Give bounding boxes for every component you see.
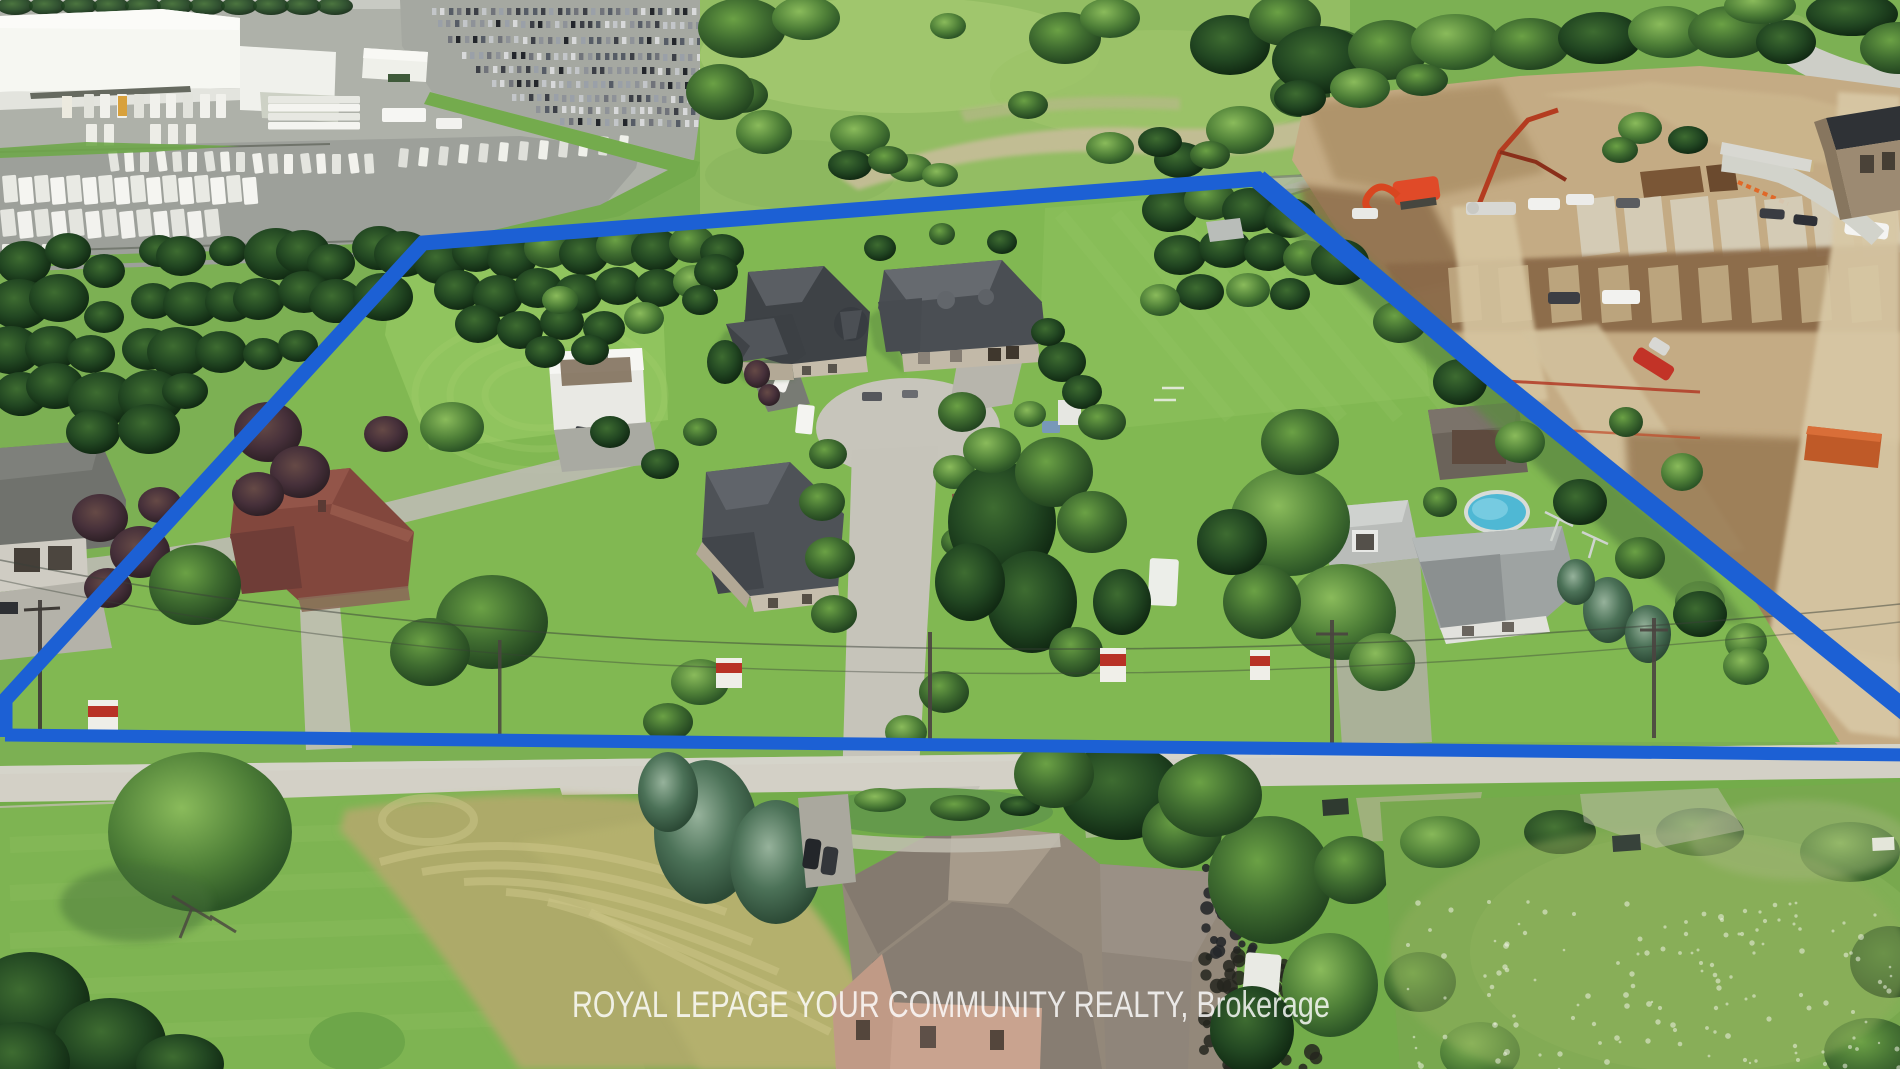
- svg-text:ROYAL LEPAGE YOUR COMMUNITY RE: ROYAL LEPAGE YOUR COMMUNITY REALTY, Brok…: [572, 984, 1330, 1025]
